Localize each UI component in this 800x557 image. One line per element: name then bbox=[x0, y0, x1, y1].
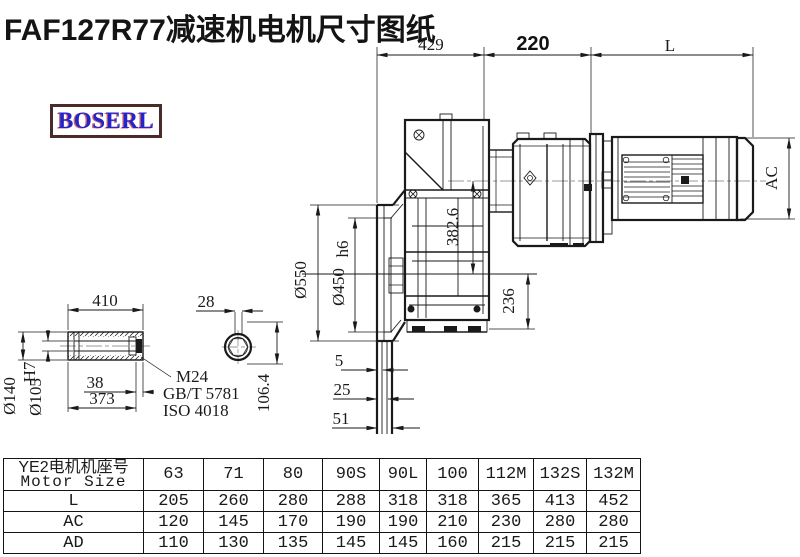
table-header-row: YE2电机机座号 Motor Size 63 71 80 90S 90L 100… bbox=[4, 459, 641, 491]
table-col-71: 71 bbox=[204, 459, 264, 491]
dim-429-label: 429 bbox=[418, 35, 444, 54]
table-col-90L: 90L bbox=[380, 459, 427, 491]
table-cell: 145 bbox=[323, 533, 380, 554]
row-label-AD: AD bbox=[4, 533, 144, 554]
dim-L-label: L bbox=[665, 36, 675, 55]
dim-105-tolerance-label: H7 bbox=[20, 361, 39, 382]
centerlines bbox=[60, 181, 766, 364]
dim-5-label: 5 bbox=[335, 351, 344, 370]
dimension-top: 429 220 L bbox=[377, 33, 753, 203]
table-row-AD: AD 110 130 135 145 145 160 215 215 215 bbox=[4, 533, 641, 554]
table-cell: 280 bbox=[587, 512, 641, 533]
table-cell: 130 bbox=[204, 533, 264, 554]
table-cell: 365 bbox=[479, 491, 534, 512]
dim-51-label: 51 bbox=[333, 409, 350, 428]
table-cell: 215 bbox=[479, 533, 534, 554]
table-cell: 260 bbox=[204, 491, 264, 512]
table-col-100: 100 bbox=[427, 459, 479, 491]
dim-410-label: 410 bbox=[92, 291, 118, 310]
table-cell: 288 bbox=[323, 491, 380, 512]
table-cell: 190 bbox=[323, 512, 380, 533]
dim-550-label: Ø550 bbox=[291, 261, 310, 299]
table-cell: 110 bbox=[144, 533, 204, 554]
table-cell: 413 bbox=[534, 491, 587, 512]
table-cell: 190 bbox=[380, 512, 427, 533]
table-col-112M: 112M bbox=[479, 459, 534, 491]
table-cell: 205 bbox=[144, 491, 204, 512]
table-cell: 135 bbox=[264, 533, 323, 554]
dim-140-label: Ø140 bbox=[0, 377, 19, 415]
dim-373-label: 373 bbox=[89, 389, 115, 408]
table-row-AC: AC 120 145 170 190 190 210 230 280 280 bbox=[4, 512, 641, 533]
input-gear-unit bbox=[489, 133, 592, 247]
table-cell: 145 bbox=[204, 512, 264, 533]
table-cell: 452 bbox=[587, 491, 641, 512]
drawing-page: FAF127R77减速机电机尺寸图纸 BOSERL bbox=[0, 0, 800, 557]
dim-AC-label: AC bbox=[762, 166, 781, 190]
dim-105-label: Ø105 bbox=[26, 378, 45, 416]
table-header-motor-size: YE2电机机座号 Motor Size bbox=[4, 459, 144, 491]
bolt-note-iso4018: ISO 4018 bbox=[163, 401, 229, 420]
dim-25-label: 25 bbox=[334, 380, 351, 399]
table-cell: 280 bbox=[264, 491, 323, 512]
dim-28-label: 28 bbox=[198, 292, 215, 311]
dim-382-6-label: 382.6 bbox=[443, 208, 462, 246]
table-cell: 145 bbox=[380, 533, 427, 554]
table-cell: 170 bbox=[264, 512, 323, 533]
dim-450-label: Ø450 bbox=[329, 268, 348, 306]
table-cell: 160 bbox=[427, 533, 479, 554]
table-cell: 120 bbox=[144, 512, 204, 533]
table-cell: 215 bbox=[587, 533, 641, 554]
table-col-132M: 132M bbox=[587, 459, 641, 491]
table-cell: 280 bbox=[534, 512, 587, 533]
table-cell: 215 bbox=[534, 533, 587, 554]
row-label-L: L bbox=[4, 491, 144, 512]
table-col-63: 63 bbox=[144, 459, 204, 491]
table-col-80: 80 bbox=[264, 459, 323, 491]
gearbox-housing bbox=[389, 114, 489, 332]
dim-220-label: 220 bbox=[516, 33, 549, 55]
dim-106-4-label: 106.4 bbox=[254, 373, 273, 412]
table-row-L: L 205 260 280 288 318 318 365 413 452 bbox=[4, 491, 641, 512]
row-label-AC: AC bbox=[4, 512, 144, 533]
table-col-132S: 132S bbox=[534, 459, 587, 491]
motor bbox=[590, 134, 753, 242]
table-cell: 318 bbox=[380, 491, 427, 512]
dimension-236: 236 bbox=[489, 274, 535, 329]
table-col-90S: 90S bbox=[323, 459, 380, 491]
table-cell: 318 bbox=[427, 491, 479, 512]
output-flange-and-leg bbox=[377, 190, 405, 434]
motor-size-table: YE2电机机座号 Motor Size 63 71 80 90S 90L 100… bbox=[3, 458, 641, 554]
dimension-flange-diameters: Ø550 Ø450 h6 bbox=[291, 205, 399, 341]
dimension-AC: AC bbox=[740, 138, 795, 219]
table-header-en: Motor Size bbox=[4, 475, 143, 490]
table-cell: 210 bbox=[427, 512, 479, 533]
dim-236-label: 236 bbox=[499, 288, 518, 314]
dim-450-tolerance-label: h6 bbox=[333, 241, 352, 258]
technical-drawing: 429 220 L 382.6 236 AC Ø550 bbox=[0, 0, 800, 458]
table-cell: 230 bbox=[479, 512, 534, 533]
